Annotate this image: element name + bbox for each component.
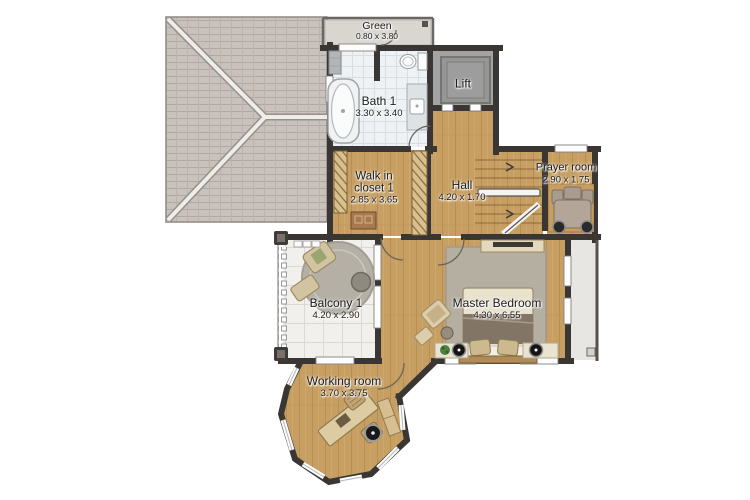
lift-door: [470, 104, 481, 111]
stair-handrail: [478, 189, 540, 196]
terrace-drain-icon: [587, 348, 595, 356]
lift-shaft: [441, 57, 490, 111]
green-planter-vent-icon: [422, 21, 428, 27]
plant: [440, 345, 450, 355]
vanity-sink: [407, 84, 427, 130]
roof: [166, 17, 327, 222]
bathtub: [328, 79, 359, 143]
closet-dresser: [351, 212, 376, 229]
window: [316, 357, 354, 364]
globe: [365, 425, 381, 441]
window: [374, 245, 381, 280]
balcony-side-table: [352, 273, 371, 292]
nightstand-right: [523, 343, 558, 358]
lift-door: [442, 104, 453, 111]
green-planter-floor: [325, 20, 431, 45]
window: [374, 286, 381, 328]
bath-cabinet: [329, 51, 341, 74]
tv-cabinet: [481, 240, 544, 252]
prayer-room-sofa: [548, 184, 594, 233]
window: [564, 298, 571, 324]
lift-corridor-floor: [432, 110, 495, 150]
side-table: [441, 327, 453, 339]
floor-plan-drawing: [0, 0, 750, 500]
window: [564, 256, 571, 286]
terrace-floor: [570, 240, 597, 360]
window: [339, 44, 376, 51]
window: [555, 145, 587, 152]
floor-plan-canvas: Green 0.80 x 3.80 Bath 1 3.30 x 3.40 Lif…: [0, 0, 750, 500]
nightstand-left: [435, 343, 468, 358]
